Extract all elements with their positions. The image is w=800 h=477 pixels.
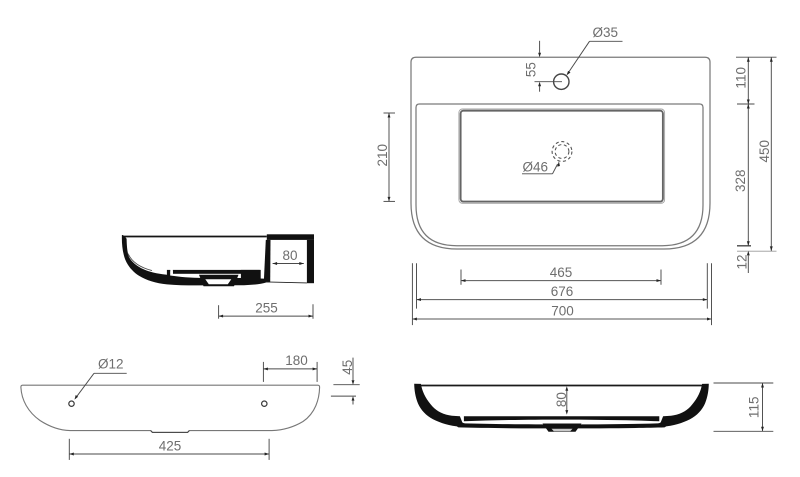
svg-text:425: 425 xyxy=(159,439,182,454)
svg-text:80: 80 xyxy=(282,248,297,263)
svg-text:210: 210 xyxy=(375,144,390,167)
svg-text:Ø35: Ø35 xyxy=(593,25,619,40)
svg-text:110: 110 xyxy=(734,67,749,89)
svg-text:Ø46: Ø46 xyxy=(523,159,549,174)
svg-text:465: 465 xyxy=(550,265,573,280)
svg-text:45: 45 xyxy=(340,360,355,375)
svg-text:328: 328 xyxy=(733,169,748,192)
svg-text:676: 676 xyxy=(551,284,574,299)
svg-text:115: 115 xyxy=(747,397,762,419)
svg-text:255: 255 xyxy=(255,301,278,316)
svg-text:Ø12: Ø12 xyxy=(98,356,124,371)
svg-text:180: 180 xyxy=(285,353,308,368)
svg-text:80: 80 xyxy=(554,392,569,407)
svg-text:450: 450 xyxy=(757,140,772,163)
svg-text:12: 12 xyxy=(734,254,749,269)
svg-text:55: 55 xyxy=(523,62,538,77)
svg-text:700: 700 xyxy=(551,304,574,319)
